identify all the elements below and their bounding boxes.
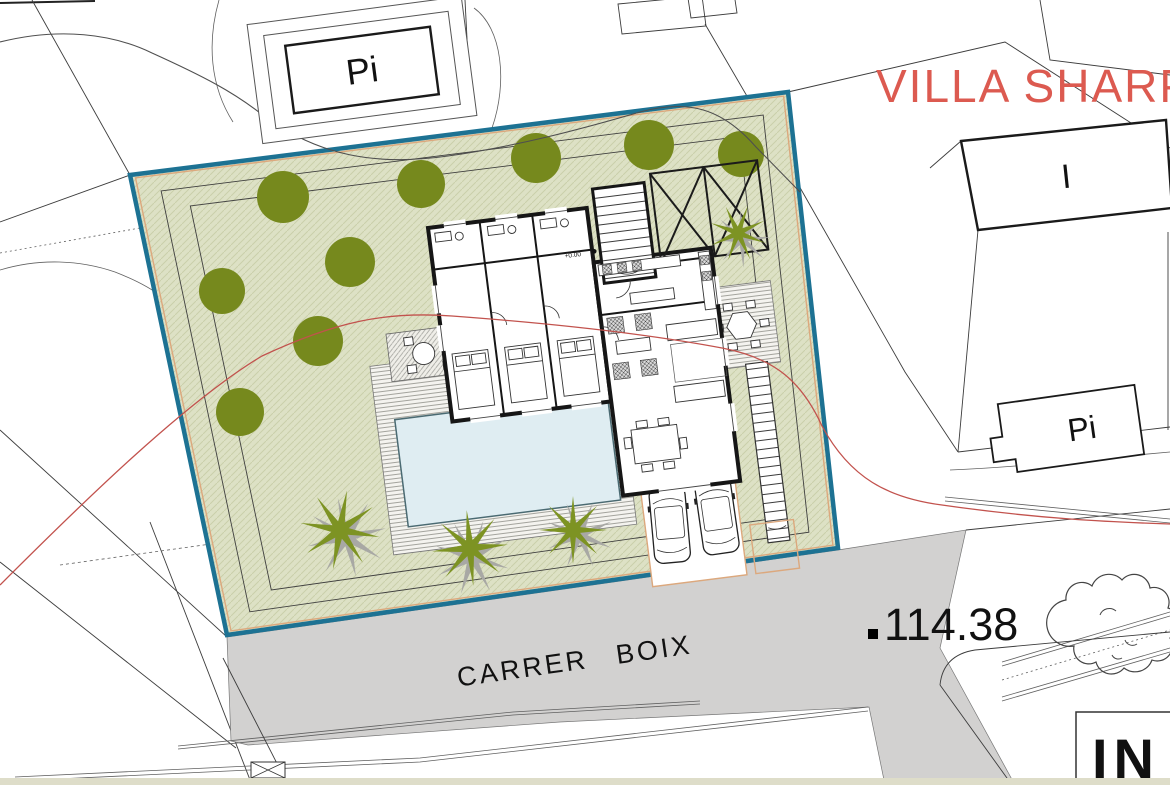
bed	[557, 336, 600, 396]
tree	[199, 268, 245, 314]
site-plan-drawing: +0.00 Pi I Pi IN VILLA SHARPE CARRER BOI…	[0, 0, 1170, 785]
bed	[505, 343, 548, 403]
cloud-tree	[1047, 574, 1170, 674]
building-label: IN	[1092, 727, 1160, 785]
page-title: VILLA SHARPE	[876, 60, 1170, 112]
tree	[718, 131, 764, 177]
elevation-marker: 114.38	[868, 599, 1018, 650]
building-pi-right: Pi	[986, 385, 1144, 475]
building-in-bottom: IN	[1076, 712, 1170, 785]
bed	[452, 349, 495, 409]
building-i-right: I	[961, 120, 1170, 230]
building-pi-top: Pi	[247, 0, 477, 144]
elevation-value: 114.38	[884, 599, 1018, 650]
tree	[511, 133, 561, 183]
bottom-bar	[0, 778, 1170, 785]
dining-table	[631, 424, 681, 463]
tree	[397, 160, 445, 208]
site-plan-page: +0.00 Pi I Pi IN VILLA SHARPE CARRER BOI…	[0, 0, 1170, 785]
drain-box-symbol	[251, 762, 285, 778]
tree	[325, 237, 375, 287]
palm-fronds	[539, 496, 607, 564]
building-label: Pi	[344, 48, 381, 93]
tree	[216, 388, 264, 436]
building-label: Pi	[1065, 409, 1098, 449]
tree	[624, 120, 674, 170]
tree	[293, 316, 343, 366]
tree	[257, 171, 309, 223]
